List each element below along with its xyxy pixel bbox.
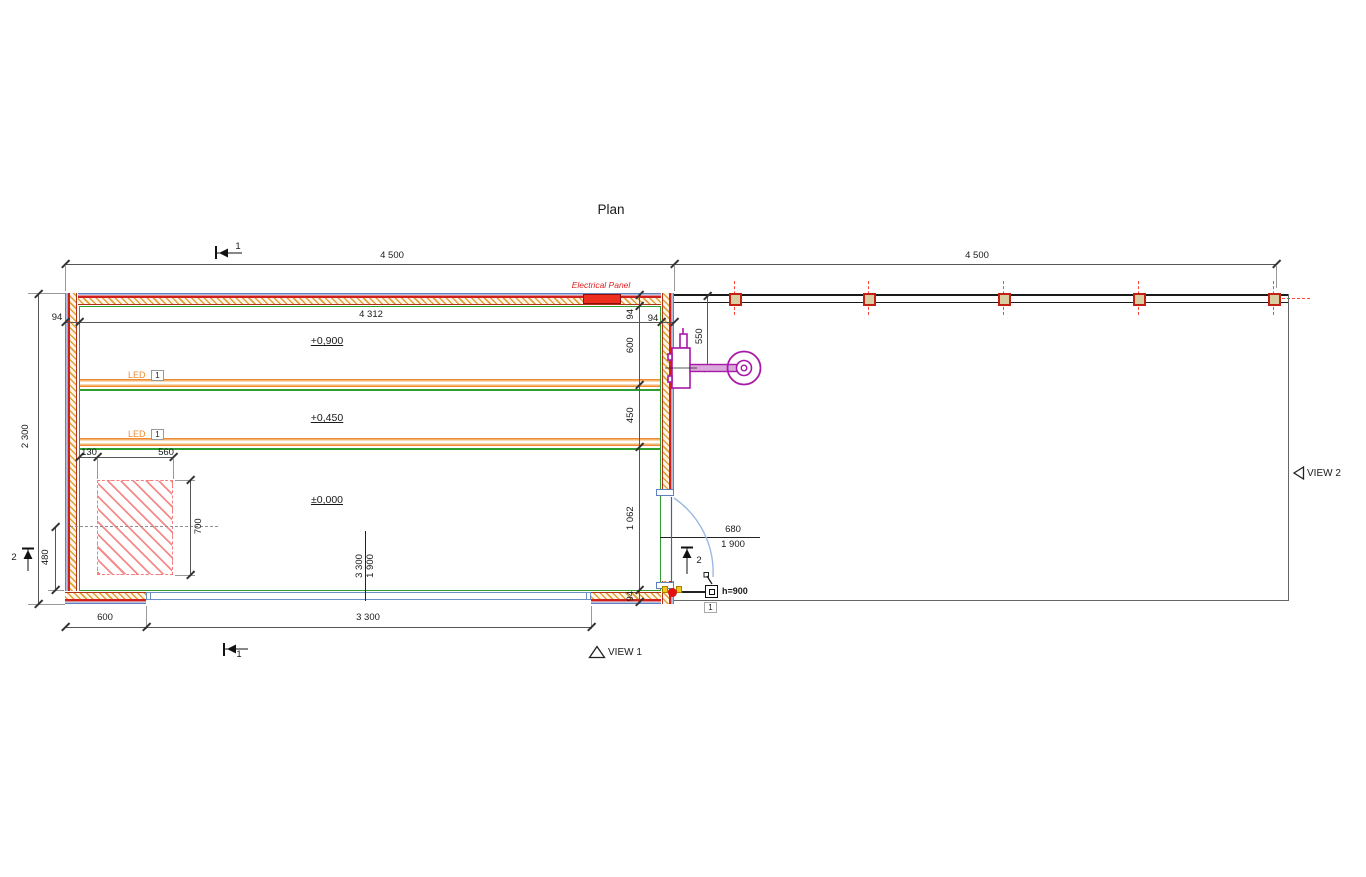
drawing-overlay <box>0 0 1366 877</box>
floor-plan-canvas: Plan LED 1 LED 1 Electrical Panel <box>0 0 1366 877</box>
equipment-unit <box>668 328 761 388</box>
section-marker-1-top <box>216 246 242 259</box>
section-marker-2-right <box>681 548 693 575</box>
section-marker-2-left <box>22 549 34 572</box>
section-marker-1-bottom <box>224 643 248 656</box>
view-1-triangle <box>590 647 605 658</box>
view-2-triangle <box>1294 467 1304 479</box>
door-swing-arc <box>674 498 713 577</box>
